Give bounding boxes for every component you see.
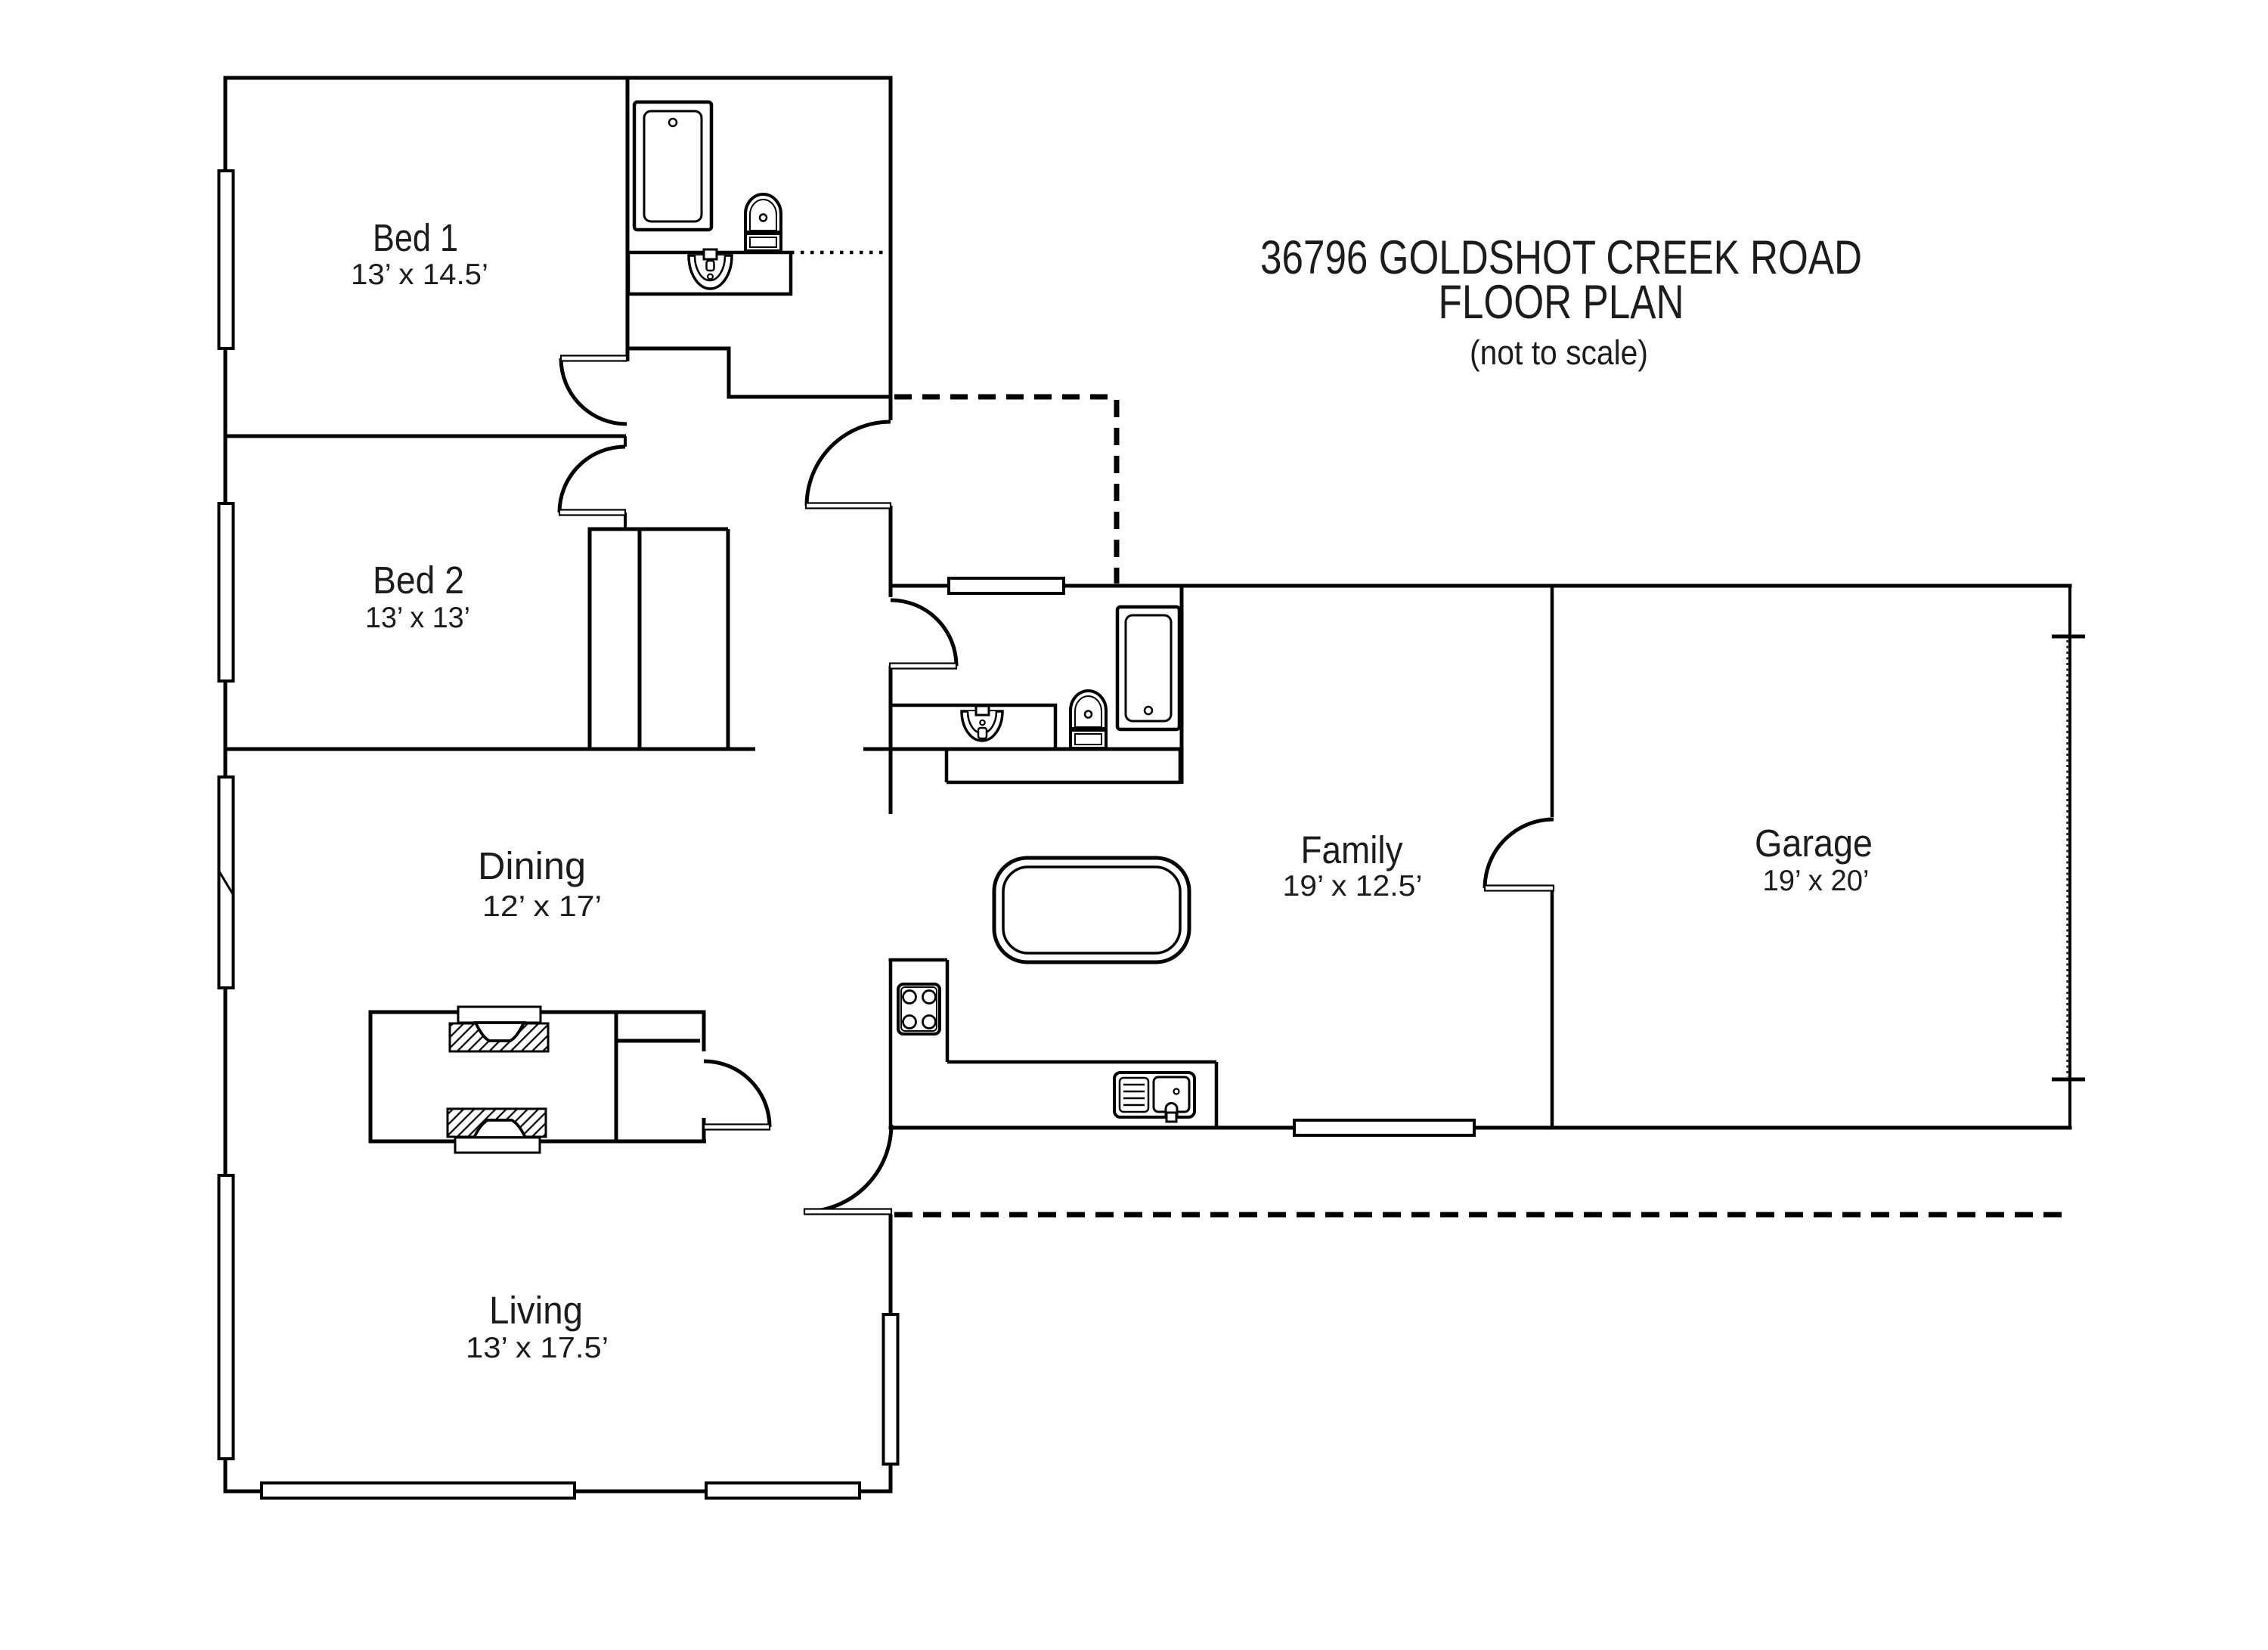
svg-text:19’ x 20’: 19’ x 20’ <box>1763 865 1870 897</box>
svg-text:Bed 2: Bed 2 <box>373 559 464 602</box>
svg-text:(not to scale): (not to scale) <box>1470 333 1648 372</box>
svg-text:Garage: Garage <box>1755 822 1873 865</box>
svg-text:Living: Living <box>489 1289 583 1332</box>
svg-text:Dining: Dining <box>478 844 586 887</box>
svg-text:13’ x 17.5’: 13’ x 17.5’ <box>466 1332 609 1364</box>
svg-text:12’ x 17’: 12’ x 17’ <box>482 890 602 923</box>
svg-text:Family: Family <box>1301 828 1403 871</box>
svg-text:FLOOR PLAN: FLOOR PLAN <box>1439 276 1684 329</box>
svg-text:13’ x 13’: 13’ x 13’ <box>365 602 470 634</box>
svg-text:Bed 1: Bed 1 <box>373 216 458 259</box>
svg-text:13’ x 14.5’: 13’ x 14.5’ <box>351 258 488 291</box>
svg-text:19’ x 12.5’: 19’ x 12.5’ <box>1283 870 1423 902</box>
